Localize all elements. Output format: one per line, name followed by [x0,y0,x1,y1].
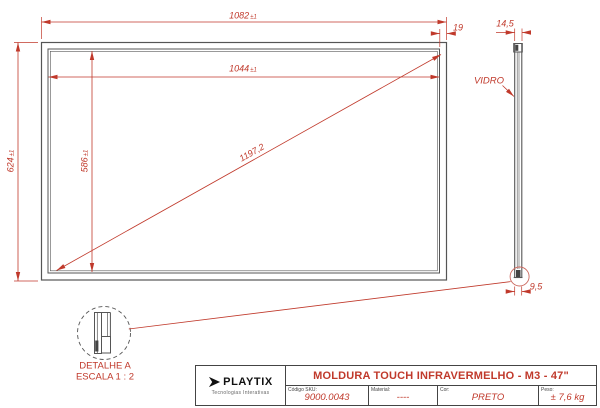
field-color-value: PRETO [472,392,505,403]
dim-line-diagonal-1197 [57,55,442,271]
profile-top-cap-fill [515,45,518,51]
side-view [514,44,523,278]
detail-a-scale: ESCALA 1 : 2 [76,372,134,382]
title-block: PLAYTIX Tecnologias Interativas MOLDURA … [195,365,597,406]
dim-text-width-inner: 1044±1 [229,65,257,74]
dim-text-height-inner: 586±1 [81,150,90,173]
detail-profile-fill [95,341,98,352]
field-sku: Código SKU: 9000.0043 [286,386,368,405]
technical-drawing-canvas: 1082±1 1044±1 624±1 586±1 1197,2 19 14,5… [0,0,600,408]
extension-lines [14,17,522,296]
field-material: Material: ---- [368,386,437,405]
profile-bottom-cap-fill [516,270,521,277]
dim-text-border-width: 19 [453,24,463,33]
dim-text-width-outer: 1082±1 [229,12,257,21]
field-weight-value: ± 7,6 kg [551,392,585,403]
drawing-linework [0,0,600,408]
title-block-right: MOLDURA TOUCH INFRAVERMELHO - M3 - 47" C… [286,366,596,405]
drawing-title-row: MOLDURA TOUCH INFRAVERMELHO - M3 - 47" [286,366,596,386]
field-material-value: ---- [397,392,410,403]
dimensions [14,17,530,329]
vidro-leader-line [503,86,515,97]
logo-wordmark: PLAYTIX [223,376,273,388]
field-weight-label: Peso: [541,387,554,393]
field-weight: Peso: ± 7,6 kg [538,386,596,405]
dim-text-height-outer: 624±1 [7,150,16,173]
logo-cell: PLAYTIX Tecnologias Interativas [196,366,286,405]
logo-row: PLAYTIX [208,375,273,389]
detail-profile-bottom-block [102,337,111,354]
detail-a-view [78,307,131,360]
dim-text-bottom-profile: 9,5 [530,283,543,292]
glass-label: VIDRO [474,76,504,86]
detail-a-dashed-circle [78,307,131,360]
field-color: Cor: PRETO [437,386,538,405]
drawing-title: MOLDURA TOUCH INFRAVERMELHO - M3 - 47" [313,370,569,382]
field-sku-label: Código SKU: [288,387,317,393]
field-color-label: Cor: [440,387,449,393]
title-block-fields: Código SKU: 9000.0043 Material: ---- Cor… [286,386,596,405]
playtix-logo-icon [208,375,221,389]
detail-a-leader-line [129,282,511,329]
detail-a-title: DETALHE A [79,361,131,371]
logo-subtitle: Tecnologias Interativas [212,390,270,396]
dim-text-thickness: 14,5 [496,20,514,29]
field-sku-value: 9000.0043 [305,392,350,403]
field-material-label: Material: [371,387,390,393]
